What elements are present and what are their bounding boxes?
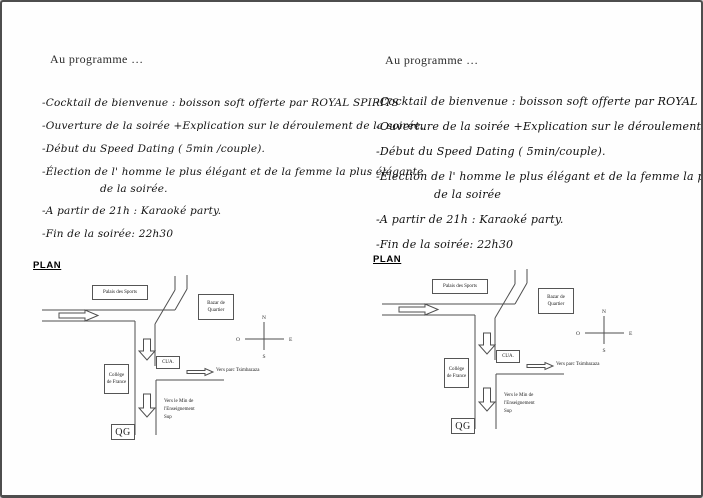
small-right-arrow-icon xyxy=(527,363,553,370)
down-arrow-icon xyxy=(139,339,155,360)
map-box-palais-des-sports: Palais des Sports xyxy=(432,279,488,294)
program-line: -Ouverture de la soirée +Explication sur… xyxy=(42,120,377,132)
compass-icon xyxy=(245,322,284,350)
road-line xyxy=(495,284,515,318)
plan-map-right: PLAN xyxy=(367,252,647,450)
compass-north-label: N xyxy=(602,309,606,315)
compass-west-label: O xyxy=(236,337,240,343)
map-label-vers-parc: Vers parc Tsimbazaza xyxy=(216,368,259,373)
compass-south-label: S xyxy=(602,348,605,354)
scanned-document-page: Au programme … -Cocktail de bienvenue : … xyxy=(0,0,703,498)
map-label-vers-parc: Vers parc Tsimbazaza xyxy=(556,362,599,367)
road-line xyxy=(515,283,527,304)
down-arrow-icon xyxy=(479,333,495,354)
map-box-cua: CUA. xyxy=(496,350,520,363)
program-line: -Fin de la soirée: 22h30 xyxy=(42,228,377,240)
plan-map-left: PLAN xyxy=(27,258,307,456)
compass-east-label: E xyxy=(289,337,293,343)
map-box-palais-des-sports: Palais des Sports xyxy=(92,285,148,300)
right-arrow-icon xyxy=(59,310,98,321)
compass-east-label: E xyxy=(629,331,633,337)
compass-south-label: S xyxy=(262,354,265,360)
down-arrow-icon xyxy=(479,388,495,411)
down-arrow-icon xyxy=(139,394,155,417)
map-label-vers-ministere: Vers le Min de l'Enseignement Sup xyxy=(504,392,538,416)
program-line-continuation: de la soirée xyxy=(376,188,703,201)
map-box-bazar-de-quartier: Bazar de Quartier xyxy=(538,288,574,314)
program-line: -Fin de la soirée: 22h30 xyxy=(376,238,703,251)
small-right-arrow-icon xyxy=(187,369,213,376)
road-line xyxy=(155,290,175,324)
program-list-right: -Cocktail de bienvenue : boisson soft of… xyxy=(376,95,703,263)
program-line: -Ouverture de la soirée +Explication sur… xyxy=(376,120,703,133)
program-line: -Début du Speed Dating ( 5min /couple). xyxy=(42,143,377,155)
program-line: -A partir de 21h : Karaoké party. xyxy=(42,205,377,217)
map-box-college-de-france: Collège de France xyxy=(444,358,469,388)
map-box-college-de-france: Collège de France xyxy=(104,364,129,394)
map-box-bazar-de-quartier: Bazar de Quartier xyxy=(198,294,234,320)
program-line: -Cocktail de bienvenue : boisson soft of… xyxy=(376,95,703,108)
program-heading-left: Au programme … xyxy=(50,52,144,67)
right-arrow-icon xyxy=(399,304,438,315)
compass-west-label: O xyxy=(576,331,580,337)
program-line: -Élection de l' homme le plus élégant et… xyxy=(376,170,703,183)
program-list-left: -Cocktail de bienvenue : boisson soft of… xyxy=(42,97,377,251)
map-box-cua: CUA. xyxy=(156,356,180,369)
map-label-vers-ministere: Vers le Min de l'Enseignement Sup xyxy=(164,398,198,422)
program-line: -Début du Speed Dating ( 5min/couple). xyxy=(376,145,703,158)
road-line xyxy=(175,289,187,310)
program-heading-right: Au programme … xyxy=(385,53,479,68)
map-box-qg: QG xyxy=(111,424,135,440)
program-line: -Élection de l' homme le plus élégant et… xyxy=(42,166,377,178)
program-line-continuation: de la soirée. xyxy=(42,183,377,195)
program-line: -A partir de 21h : Karaoké party. xyxy=(376,213,703,226)
map-box-qg: QG xyxy=(451,418,475,434)
compass-north-label: N xyxy=(262,315,266,321)
compass-icon xyxy=(585,316,624,344)
program-line: -Cocktail de bienvenue : boisson soft of… xyxy=(42,97,377,109)
